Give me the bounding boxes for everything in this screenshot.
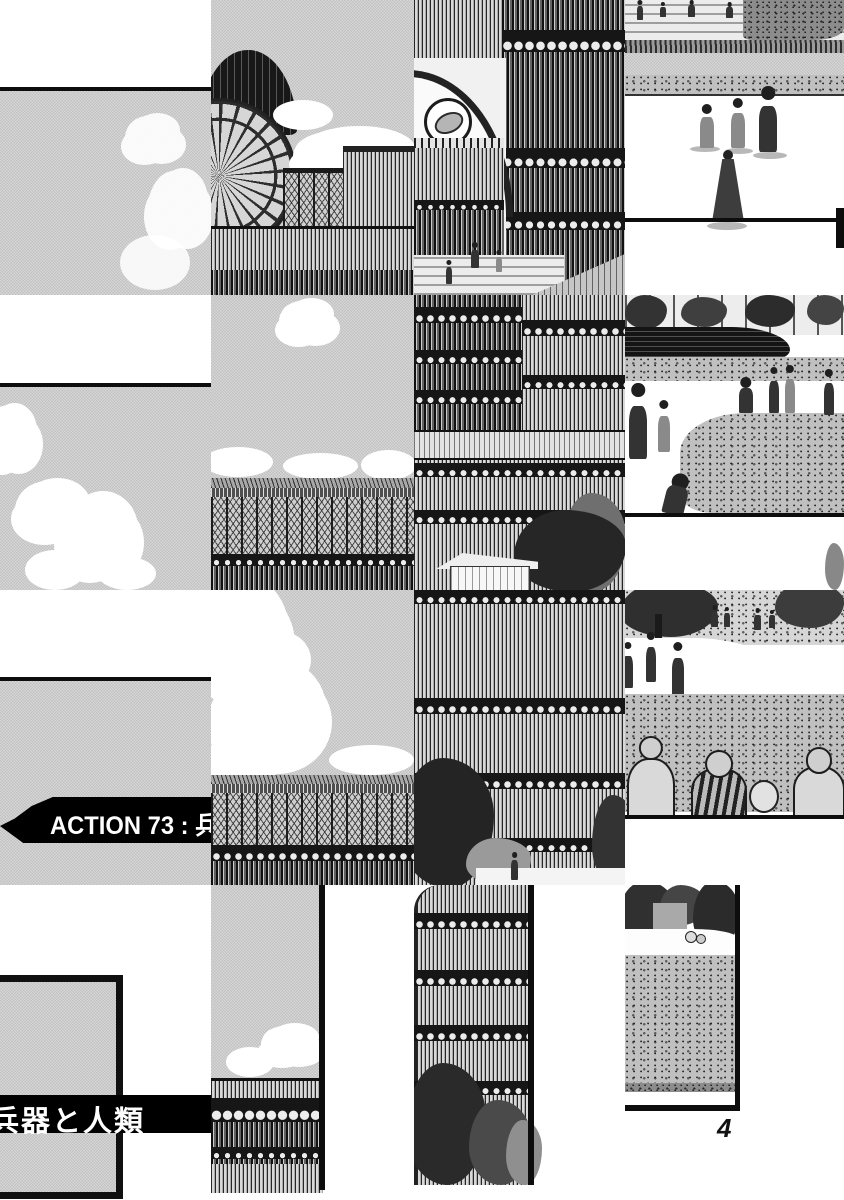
stroller-figure	[659, 2, 667, 17]
tile-r4c1-subtitle: 兵器と人類	[0, 885, 211, 1200]
onlooker-back	[793, 766, 844, 817]
figure-head	[696, 934, 706, 944]
visitor-figure	[494, 250, 504, 272]
cloud	[283, 453, 358, 479]
figure-shadow	[707, 222, 747, 230]
cloud	[125, 115, 180, 160]
canopy-gap	[653, 903, 687, 929]
cloud	[329, 745, 414, 775]
woman-walker	[625, 642, 635, 688]
woman-walker	[821, 369, 837, 415]
spandrel-band	[211, 1147, 323, 1159]
tile-r4c4-park-panel: 4	[625, 885, 844, 1200]
cloud	[25, 550, 85, 590]
manga-page: ACTION 73 : 兵	[0, 0, 844, 1200]
cloud	[241, 630, 311, 690]
page-number: 4	[717, 1113, 751, 1143]
tree-dark	[514, 510, 625, 590]
stroller-figure	[768, 610, 776, 628]
tile-r4c2-sky-column	[211, 885, 414, 1200]
sign-band	[414, 138, 504, 148]
spandrel-band	[414, 1025, 530, 1041]
glass-hall	[343, 146, 414, 238]
woman-walker	[643, 632, 659, 682]
onlooker-head	[749, 780, 779, 813]
stroller-figure	[710, 605, 719, 627]
spandrel-band	[502, 212, 625, 230]
entrance-doors	[414, 210, 504, 258]
panel-corner	[0, 975, 123, 1199]
spandrel-band	[414, 390, 522, 404]
kiosk-body	[450, 566, 530, 590]
spandrel-band	[414, 307, 522, 323]
tile-r1c3-entrance	[414, 0, 625, 295]
onlooker-back	[627, 758, 675, 817]
spandrel-band	[522, 375, 625, 389]
balustrade	[211, 497, 414, 554]
running-child	[735, 377, 757, 413]
man-in-coat	[755, 86, 781, 152]
stroller-figure	[635, 0, 645, 20]
woman-head	[723, 150, 733, 160]
visitor-figure	[444, 260, 454, 284]
figure-shadow	[753, 152, 787, 159]
stroller-figure	[725, 2, 734, 18]
bush	[506, 1120, 542, 1185]
lawn	[625, 955, 739, 1085]
cloud	[148, 170, 208, 245]
cloud	[226, 1047, 274, 1077]
cornice-band	[211, 784, 414, 793]
playing-child	[697, 104, 717, 148]
spandrel-band	[414, 350, 522, 364]
spandrel-band	[211, 1098, 323, 1122]
spandrel-band	[211, 845, 414, 861]
tile-r2c3-facade	[414, 295, 625, 590]
panel-border-line	[625, 218, 844, 222]
tile-r3c4-park-lawn	[625, 590, 844, 885]
ornament-band	[414, 200, 504, 210]
tile-r1c1-sky-margin	[0, 0, 211, 295]
lawn-edge	[625, 1083, 739, 1092]
tile-r2c1-sky	[0, 295, 211, 590]
spandrel-band	[211, 554, 414, 566]
halftone-sky	[0, 681, 211, 885]
subtitle-text: 兵器と人類	[0, 1098, 145, 1140]
hedge	[743, 0, 844, 40]
spandrel-band	[414, 463, 625, 477]
tile-r3c3-facade-trees	[414, 590, 625, 885]
grass-band	[625, 75, 844, 96]
tile-r1c2-dome	[211, 0, 414, 295]
ground-strip	[476, 868, 625, 885]
subtitle-ribbon: 兵器と人類	[0, 1095, 211, 1133]
tile-r4c3-transept	[414, 885, 625, 1200]
gravel-path	[625, 53, 844, 75]
colonnade-base	[211, 270, 414, 295]
man-with-hat	[625, 383, 651, 459]
cloud	[361, 450, 414, 480]
panel-border-vertical	[319, 885, 325, 1190]
tile-r1c4-plaza	[625, 0, 844, 295]
visitor-figure	[509, 852, 520, 880]
woman-dress	[712, 159, 744, 222]
tile-r3c2-cloud-gallery	[211, 590, 414, 885]
spandrel-band	[502, 148, 625, 168]
woman-walker	[669, 642, 687, 696]
spandrel-band	[522, 320, 625, 336]
panel-border-line	[625, 815, 844, 819]
chapter-title: ACTION 73 : 兵	[50, 806, 211, 842]
hedge-edge	[625, 40, 844, 53]
spandrel-band	[502, 30, 625, 52]
spandrel-band	[414, 913, 530, 929]
partial-figure	[825, 543, 844, 590]
lawn	[680, 413, 844, 513]
stroller-figure	[753, 608, 762, 630]
cloud	[211, 447, 273, 477]
woman-long-dress	[710, 150, 746, 222]
page-edge-tab	[836, 208, 844, 248]
spandrel-band	[414, 698, 625, 714]
woman-walker	[767, 367, 781, 413]
playing-child	[728, 98, 748, 148]
tile-r2c2-gallery	[211, 295, 414, 590]
woman-walker	[782, 365, 798, 413]
panel-border-vertical	[528, 885, 534, 1185]
pond-glimpse	[625, 929, 739, 955]
balustrade	[211, 793, 414, 845]
stroller-figure	[687, 0, 696, 17]
tile-r2c4-park-pond	[625, 295, 844, 590]
visitor-figure	[469, 242, 481, 268]
cloud	[120, 235, 190, 290]
panel-border-line	[625, 513, 844, 517]
cloud	[273, 100, 333, 130]
clock-face	[431, 108, 467, 139]
gallery-band	[414, 430, 625, 460]
onlooker-striped	[691, 768, 747, 817]
cloud	[279, 300, 334, 342]
stroller-figure	[723, 607, 731, 627]
boy	[655, 400, 673, 452]
crouching-boy	[656, 470, 697, 518]
panel-border-vertical	[735, 885, 740, 1111]
entrance-windows	[414, 148, 504, 200]
cornice-band	[211, 488, 414, 497]
staircase	[414, 255, 564, 295]
cloud	[98, 557, 156, 590]
spandrel-band	[414, 970, 530, 986]
tile-r3c1-chapter-banner: ACTION 73 : 兵	[0, 590, 211, 885]
panel-border-bottom	[625, 1105, 739, 1111]
spandrel-band	[414, 590, 625, 604]
